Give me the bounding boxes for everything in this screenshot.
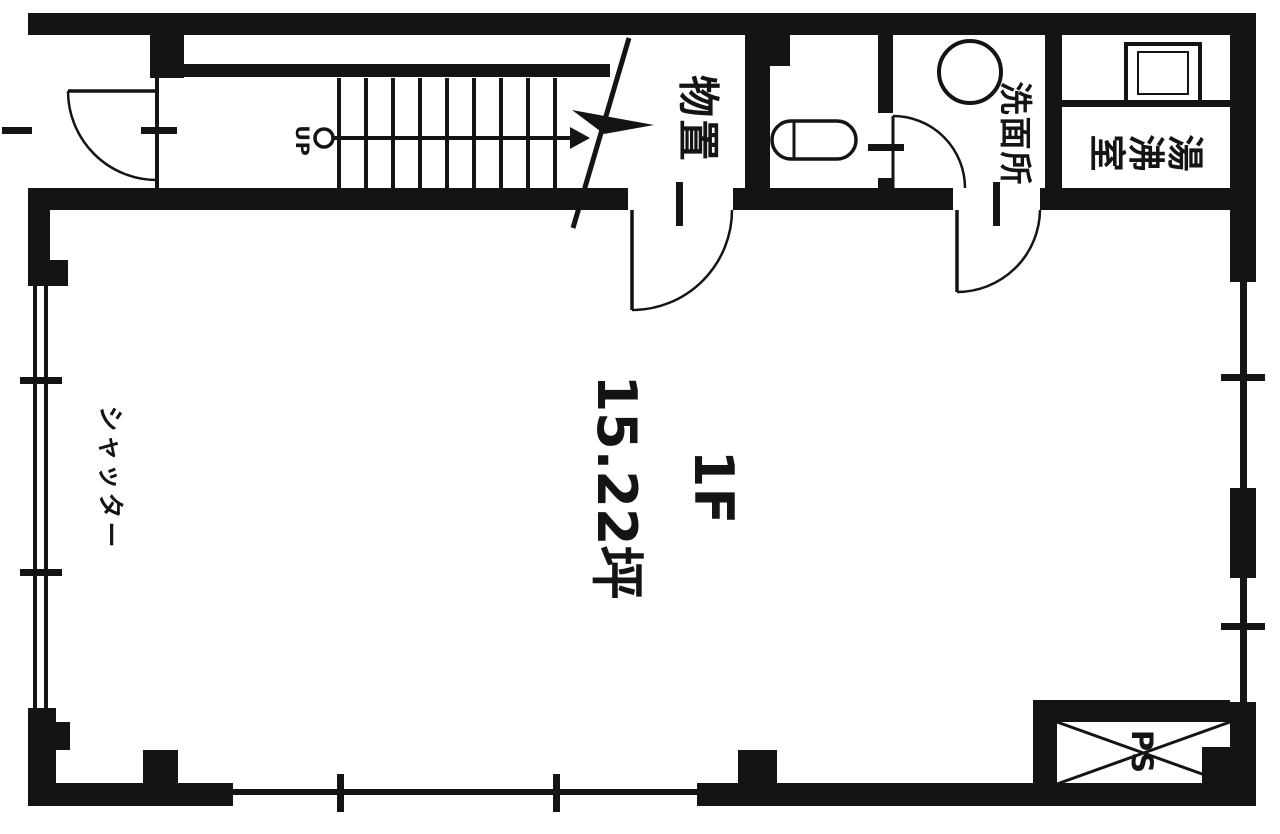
wall-divider-left xyxy=(28,188,628,210)
wall-bottom-left xyxy=(28,783,233,806)
pillar-bottom-mid xyxy=(738,750,777,783)
stair-stringer-wall xyxy=(184,64,610,77)
stairs-up-label: UP xyxy=(291,125,313,156)
pipe-space-label: PS xyxy=(1125,730,1159,774)
washbasin xyxy=(939,41,1001,103)
entrance-door-swing-arc xyxy=(68,91,157,180)
wall-bottom-mid xyxy=(697,783,1035,806)
wall-washroom-heater-partition xyxy=(1045,33,1062,188)
window-right-lower xyxy=(1240,578,1247,702)
wall-left-step-bottom xyxy=(56,722,70,750)
ps-box-top-wall xyxy=(1057,700,1230,722)
window-tick-right-upper xyxy=(1221,374,1265,381)
window-tick-bottom-2 xyxy=(553,774,560,812)
shutter-line-outer xyxy=(33,286,37,708)
shutter-label: シャッター xyxy=(94,405,131,550)
wall-top xyxy=(28,13,1256,35)
wall-bottom-right xyxy=(1035,783,1256,806)
window-tick-bottom-1 xyxy=(337,774,344,812)
stair-start-marker xyxy=(315,129,333,147)
wall-right-top xyxy=(1230,13,1256,282)
storage-room-label: 物置 xyxy=(671,75,732,163)
toilet-door-swing-arc xyxy=(893,116,965,188)
wall-right-pier xyxy=(1230,488,1256,578)
wall-storage-step xyxy=(770,33,790,66)
washroom-label: 洗面所 xyxy=(994,82,1042,187)
wall-divider-right xyxy=(1040,188,1256,210)
water-heater-room-label: 湯沸室 xyxy=(1088,122,1205,176)
toilet-fixture xyxy=(772,121,856,159)
sink-unit-inner xyxy=(1138,52,1188,94)
shutter-tick-upper xyxy=(20,377,62,384)
doorway-tick-entry xyxy=(2,127,32,134)
pillar-entrance xyxy=(150,33,184,78)
floor-number-label: 1F xyxy=(665,375,762,600)
area-size-label: 15.22坪 xyxy=(568,375,665,600)
wall-storage-right xyxy=(745,33,770,188)
pillar-bottom-left xyxy=(143,750,178,783)
wall-divider-mid xyxy=(733,188,953,210)
wall-toilet-partition-stub xyxy=(878,178,893,188)
entrance-door xyxy=(68,91,157,180)
shutter-tick-lower xyxy=(20,569,62,576)
shutter-line-inner xyxy=(44,286,48,708)
doorway-tick-storage xyxy=(676,182,683,226)
wall-left-corner-top xyxy=(28,188,50,286)
floor-area-label: 1F 15.22坪 xyxy=(568,375,762,600)
wall-toilet-washroom-partition xyxy=(878,33,893,113)
stair-break-flash xyxy=(572,110,654,134)
doorway-tick-washroom xyxy=(993,182,1000,226)
stair-treads xyxy=(339,78,555,188)
toilet-door xyxy=(893,116,965,188)
window-bottom xyxy=(233,789,697,795)
window-right-upper xyxy=(1240,282,1247,488)
stair-direction-arrow-head xyxy=(570,127,590,149)
window-tick-right-lower xyxy=(1221,623,1265,630)
wall-left-step-top xyxy=(50,260,68,286)
doorway-tick-toilet xyxy=(868,144,904,151)
ps-corner-step xyxy=(1202,747,1230,784)
floor-plan: UP 物置 洗面所 湯沸室 シャッター 1F 15.22坪 PS xyxy=(0,0,1280,834)
